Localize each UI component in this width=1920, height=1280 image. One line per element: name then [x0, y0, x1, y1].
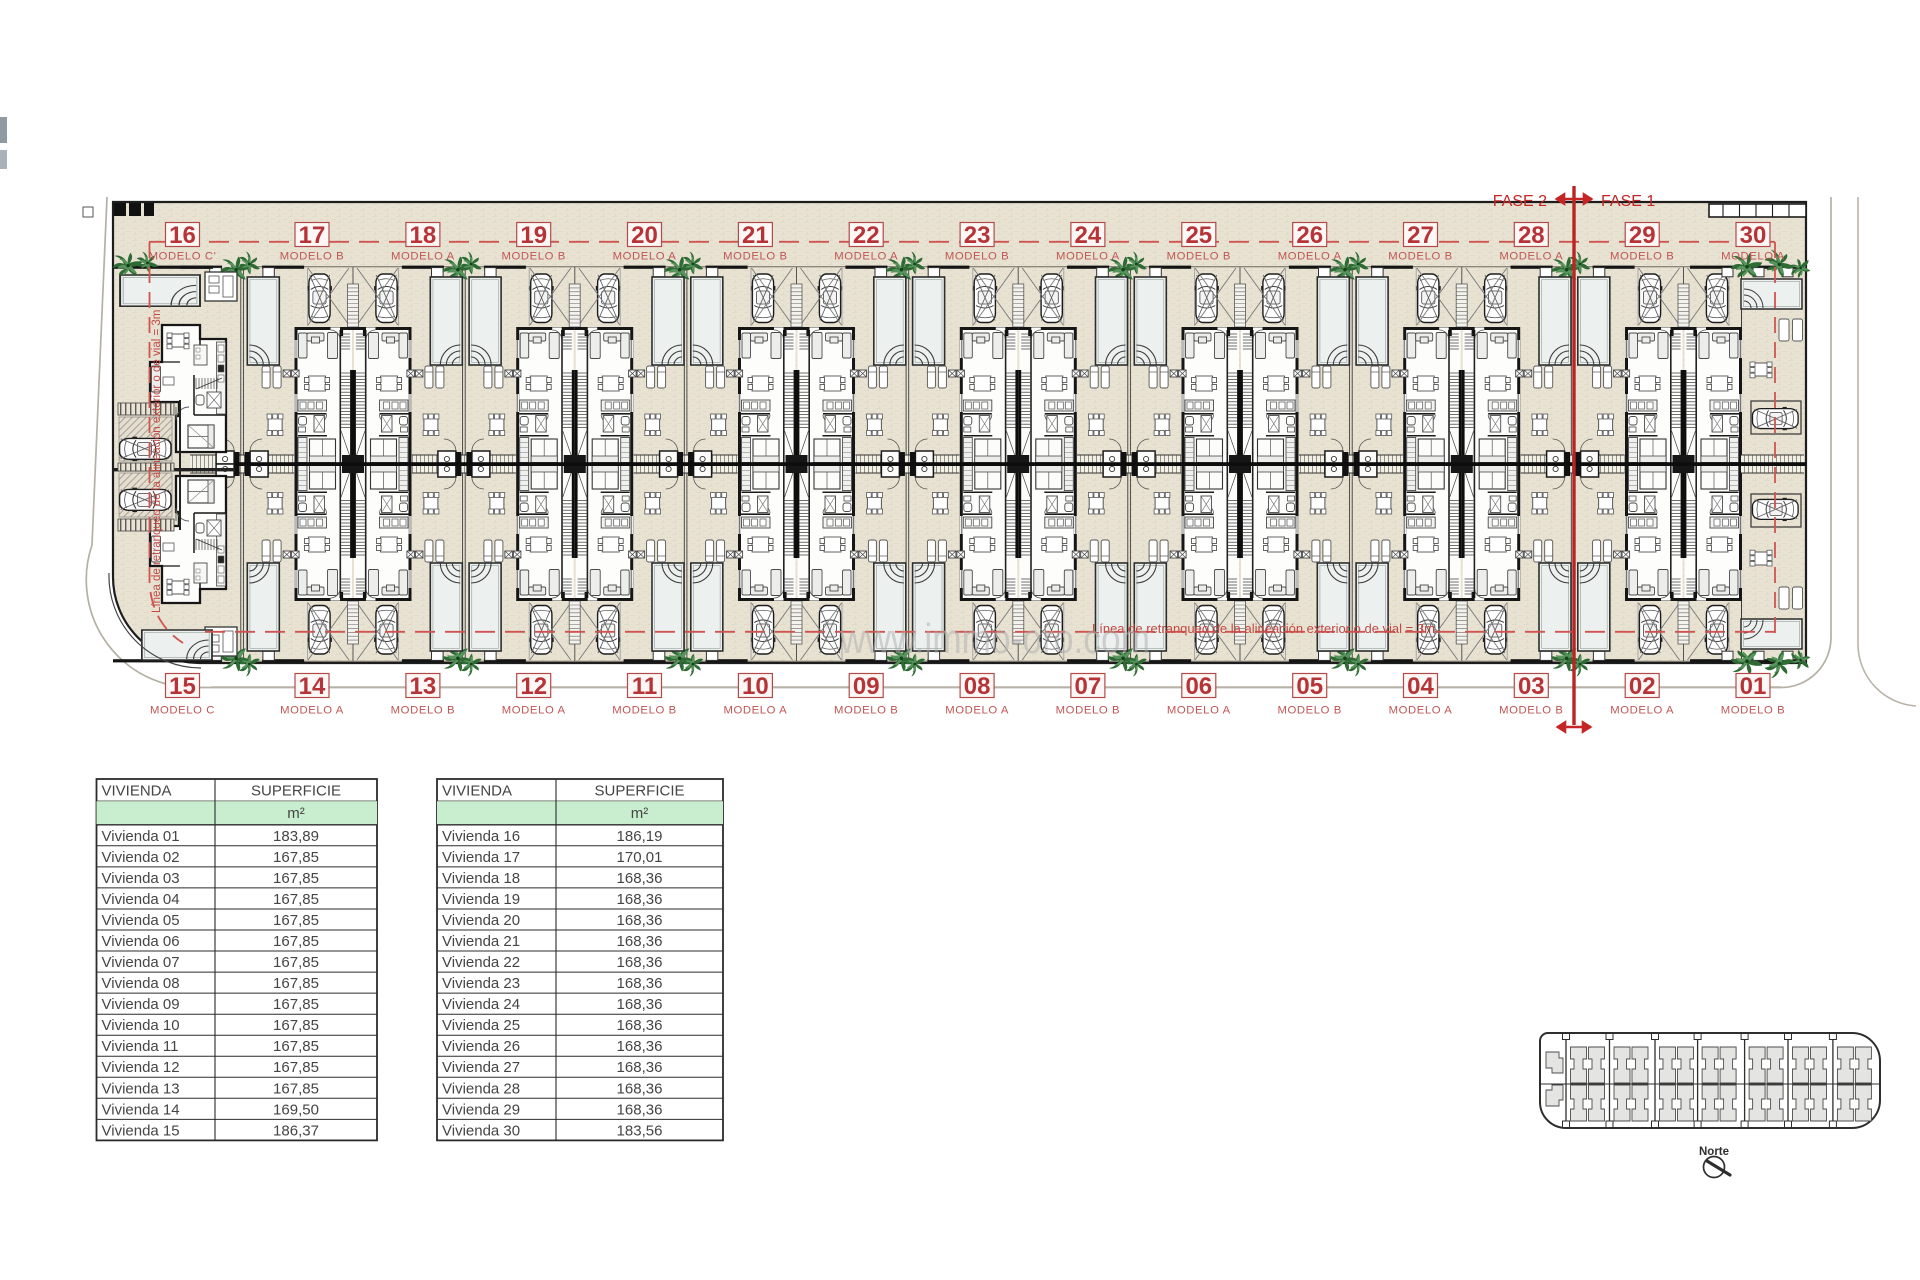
- svg-text:03: 03: [1518, 673, 1545, 700]
- svg-text:MODELO A: MODELO A: [1389, 705, 1453, 717]
- svg-text:168,36: 168,36: [617, 1038, 663, 1055]
- svg-text:Vivienda 04: Vivienda 04: [102, 891, 180, 908]
- svg-text:02: 02: [1629, 673, 1656, 700]
- svg-text:MODELO A: MODELO A: [1721, 251, 1785, 263]
- svg-text:MODELO A: MODELO A: [834, 251, 898, 263]
- svg-text:11: 11: [632, 673, 657, 700]
- svg-text:Vivienda 15: Vivienda 15: [102, 1122, 180, 1139]
- svg-text:MODELO A: MODELO A: [1499, 251, 1563, 263]
- svg-text:170,01: 170,01: [617, 849, 663, 866]
- svg-text:13: 13: [410, 673, 437, 700]
- svg-text:Vivienda 21: Vivienda 21: [442, 933, 520, 950]
- svg-text:MODELO B: MODELO B: [1388, 251, 1452, 263]
- svg-text:167,85: 167,85: [273, 849, 319, 866]
- svg-text:Vivienda 07: Vivienda 07: [102, 954, 180, 971]
- svg-text:14: 14: [299, 673, 326, 700]
- svg-text:169,50: 169,50: [273, 1101, 319, 1118]
- svg-text:Vivienda 10: Vivienda 10: [102, 1017, 180, 1034]
- svg-text:04: 04: [1407, 673, 1434, 700]
- svg-text:MODELO A: MODELO A: [1610, 705, 1674, 717]
- svg-text:Vivienda 18: Vivienda 18: [442, 870, 520, 887]
- svg-text:MODELO A: MODELO A: [1278, 251, 1342, 263]
- svg-text:07: 07: [1075, 673, 1102, 700]
- svg-text:Vivienda 08: Vivienda 08: [102, 975, 180, 992]
- svg-text:Vivienda 23: Vivienda 23: [442, 975, 520, 992]
- svg-text:167,85: 167,85: [273, 870, 319, 887]
- svg-text:MODELO B: MODELO B: [1277, 705, 1341, 717]
- svg-text:183,89: 183,89: [273, 828, 319, 845]
- svg-text:168,36: 168,36: [617, 891, 663, 908]
- svg-text:168,36: 168,36: [617, 975, 663, 992]
- svg-text:MODELO A: MODELO A: [945, 705, 1009, 717]
- svg-text:Vivienda 13: Vivienda 13: [102, 1080, 180, 1097]
- svg-text:Vivienda 02: Vivienda 02: [102, 849, 180, 866]
- svg-text:Vivienda 05: Vivienda 05: [102, 912, 180, 929]
- svg-text:10: 10: [742, 673, 769, 700]
- svg-text:167,85: 167,85: [273, 1059, 319, 1076]
- svg-text:MODELO B: MODELO B: [391, 705, 455, 717]
- svg-text:MODELO B: MODELO B: [1721, 705, 1785, 717]
- svg-text:MODELO B: MODELO B: [1610, 251, 1674, 263]
- svg-text:Vivienda 19: Vivienda 19: [442, 891, 520, 908]
- svg-text:FASE 1: FASE 1: [1601, 193, 1655, 210]
- svg-text:20: 20: [631, 222, 658, 249]
- svg-text:27: 27: [1407, 222, 1434, 249]
- svg-text:m²: m²: [287, 805, 305, 822]
- svg-text:Vivienda 28: Vivienda 28: [442, 1080, 520, 1097]
- svg-text:19: 19: [520, 222, 547, 249]
- svg-text:MODELO B: MODELO B: [1056, 705, 1120, 717]
- svg-text:22: 22: [853, 222, 880, 249]
- svg-text:MODELO B: MODELO B: [280, 251, 344, 263]
- svg-text:168,36: 168,36: [617, 996, 663, 1013]
- svg-text:Vivienda 20: Vivienda 20: [442, 912, 520, 929]
- svg-text:23: 23: [964, 222, 991, 249]
- svg-text:24: 24: [1075, 222, 1102, 249]
- svg-text:168,36: 168,36: [617, 954, 663, 971]
- svg-text:VIVIENDA: VIVIENDA: [102, 783, 172, 800]
- svg-text:www.immo-oro.com: www.immo-oro.com: [839, 615, 1150, 662]
- svg-text:15: 15: [169, 673, 196, 700]
- svg-text:Vivienda 24: Vivienda 24: [442, 996, 520, 1013]
- svg-text:MODELO A: MODELO A: [613, 251, 677, 263]
- svg-text:Vivienda 14: Vivienda 14: [102, 1101, 180, 1118]
- svg-text:SUPERFICIE: SUPERFICIE: [594, 783, 684, 800]
- svg-text:168,36: 168,36: [617, 912, 663, 929]
- svg-text:MODELO A: MODELO A: [1056, 251, 1120, 263]
- svg-text:Vivienda 25: Vivienda 25: [442, 1017, 520, 1034]
- svg-text:MODELO C: MODELO C: [150, 705, 215, 717]
- svg-text:12: 12: [520, 673, 547, 700]
- svg-text:MODELO C': MODELO C': [149, 251, 217, 263]
- svg-text:167,85: 167,85: [273, 996, 319, 1013]
- svg-text:168,36: 168,36: [617, 1059, 663, 1076]
- svg-text:Vivienda 12: Vivienda 12: [102, 1059, 180, 1076]
- svg-text:MODELO A: MODELO A: [280, 705, 344, 717]
- svg-text:MODELO A: MODELO A: [723, 705, 787, 717]
- svg-text:MODELO B: MODELO B: [723, 251, 787, 263]
- svg-text:09: 09: [853, 673, 880, 700]
- svg-text:MODELO B: MODELO B: [834, 705, 898, 717]
- svg-text:28: 28: [1518, 222, 1545, 249]
- svg-text:16: 16: [169, 222, 196, 249]
- svg-text:MODELO A: MODELO A: [502, 705, 566, 717]
- svg-text:MODELO B: MODELO B: [1499, 705, 1563, 717]
- svg-text:Vivienda 09: Vivienda 09: [102, 996, 180, 1013]
- svg-text:17: 17: [299, 222, 326, 249]
- svg-text:167,85: 167,85: [273, 954, 319, 971]
- svg-text:MODELO B: MODELO B: [612, 705, 676, 717]
- svg-text:167,85: 167,85: [273, 912, 319, 929]
- svg-text:183,56: 183,56: [617, 1122, 663, 1139]
- svg-text:168,36: 168,36: [617, 870, 663, 887]
- svg-text:168,36: 168,36: [617, 1101, 663, 1118]
- svg-text:167,85: 167,85: [273, 933, 319, 950]
- svg-text:186,19: 186,19: [617, 828, 663, 845]
- svg-text:167,85: 167,85: [273, 891, 319, 908]
- svg-text:30: 30: [1740, 222, 1767, 249]
- svg-text:MODELO B: MODELO B: [945, 251, 1009, 263]
- svg-text:Vivienda 03: Vivienda 03: [102, 870, 180, 887]
- svg-text:168,36: 168,36: [617, 1017, 663, 1034]
- svg-text:SUPERFICIE: SUPERFICIE: [251, 783, 341, 800]
- svg-text:167,85: 167,85: [273, 1080, 319, 1097]
- svg-text:Vivienda 29: Vivienda 29: [442, 1101, 520, 1118]
- svg-text:29: 29: [1629, 222, 1656, 249]
- svg-text:MODELO A: MODELO A: [391, 251, 455, 263]
- svg-text:m²: m²: [631, 805, 649, 822]
- svg-text:167,85: 167,85: [273, 1038, 319, 1055]
- svg-text:08: 08: [964, 673, 991, 700]
- svg-text:MODELO A: MODELO A: [1167, 705, 1231, 717]
- svg-text:01: 01: [1740, 673, 1767, 700]
- svg-text:167,85: 167,85: [273, 975, 319, 992]
- svg-text:Línea de retranqueo de la alin: Línea de retranqueo de la alineación ext…: [151, 310, 163, 613]
- svg-text:Vivienda 17: Vivienda 17: [442, 849, 520, 866]
- svg-text:167,85: 167,85: [273, 1017, 319, 1034]
- svg-text:Vivienda 27: Vivienda 27: [442, 1059, 520, 1076]
- svg-text:MODELO B: MODELO B: [1167, 251, 1231, 263]
- svg-text:26: 26: [1296, 222, 1323, 249]
- svg-text:25: 25: [1185, 222, 1212, 249]
- svg-text:Vivienda 22: Vivienda 22: [442, 954, 520, 971]
- svg-text:18: 18: [410, 222, 437, 249]
- svg-text:168,36: 168,36: [617, 933, 663, 950]
- svg-text:Vivienda 30: Vivienda 30: [442, 1122, 520, 1139]
- svg-text:06: 06: [1185, 673, 1212, 700]
- svg-text:Vivienda 01: Vivienda 01: [102, 828, 180, 845]
- svg-text:186,37: 186,37: [273, 1122, 319, 1139]
- svg-text:Vivienda 06: Vivienda 06: [102, 933, 180, 950]
- svg-text:Vivienda 26: Vivienda 26: [442, 1038, 520, 1055]
- svg-text:Vivienda 16: Vivienda 16: [442, 828, 520, 845]
- svg-text:FASE 2: FASE 2: [1493, 193, 1547, 210]
- svg-text:168,36: 168,36: [617, 1080, 663, 1097]
- svg-text:21: 21: [742, 222, 769, 249]
- svg-text:Vivienda 11: Vivienda 11: [102, 1038, 179, 1055]
- svg-text:MODELO B: MODELO B: [501, 251, 565, 263]
- svg-text:VIVIENDA: VIVIENDA: [442, 783, 512, 800]
- svg-text:05: 05: [1296, 673, 1323, 700]
